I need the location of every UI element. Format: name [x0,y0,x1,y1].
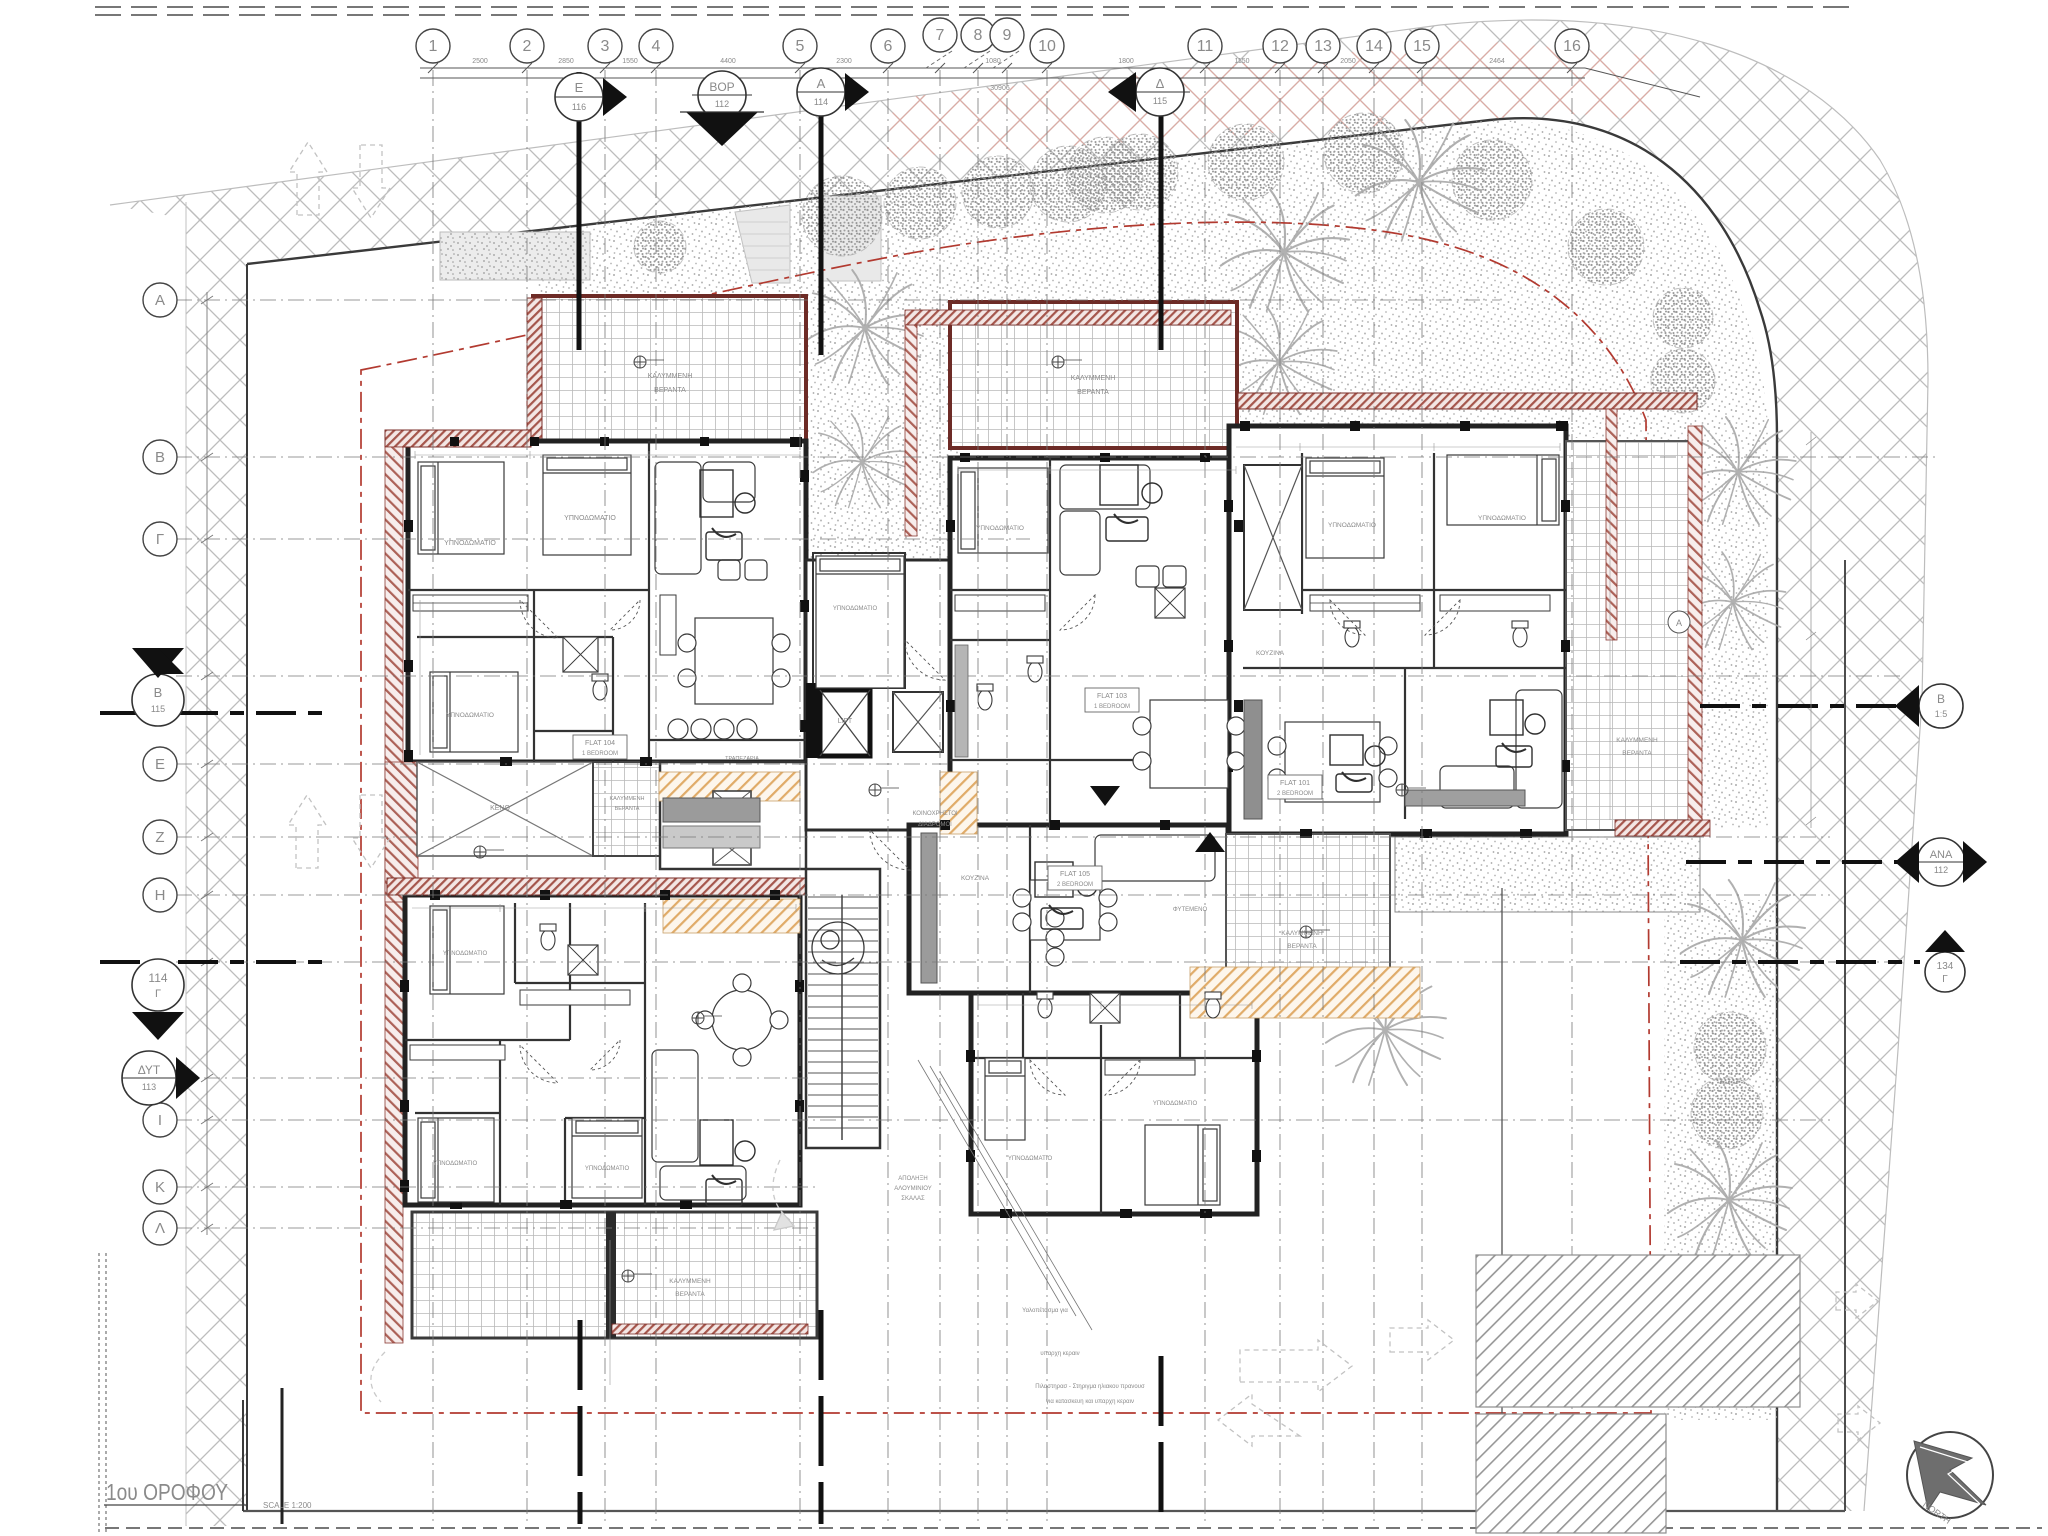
svg-text:6: 6 [884,38,893,55]
svg-text:ΒΕΡΑΝΤΑ: ΒΕΡΑΝΤΑ [615,806,640,812]
svg-text:Z: Z [155,829,164,846]
svg-text:2: 2 [523,38,532,55]
svg-text:ΚΕΝΟ: ΚΕΝΟ [490,805,510,812]
svg-text:1150: 1150 [1234,58,1249,65]
svg-text:ΥΠΝΟΔΩΜΑΤΙΟ: ΥΠΝΟΔΩΜΑΤΙΟ [1328,522,1376,529]
svg-text:112: 112 [715,99,729,109]
svg-text:FLAT 105: FLAT 105 [1060,871,1090,878]
svg-text:2 BEDROOM: 2 BEDROOM [1277,791,1313,797]
svg-text:1080: 1080 [985,58,1001,65]
svg-text:ΚΑΛΥΜΜΕΝΗ: ΚΑΛΥΜΜΕΝΗ [669,1278,711,1285]
svg-text:ΒΕΡΑΝΤΑ: ΒΕΡΑΝΤΑ [1077,389,1109,396]
svg-text:A: A [155,292,165,309]
svg-text:υπαρχη κεραιν: υπαρχη κεραιν [1040,1351,1079,1357]
svg-text:Λ: Λ [155,1220,165,1237]
svg-text:B: B [155,449,165,466]
svg-text:Γ: Γ [156,531,164,548]
svg-text:8: 8 [974,27,983,44]
svg-text:ΥΠΝΟΔΩΜΑΤΙΟ: ΥΠΝΟΔΩΜΑΤΙΟ [585,1166,630,1172]
svg-text:ΥΠΝΟΔΩΜΑΤΙΟ: ΥΠΝΟΔΩΜΑΤΙΟ [1478,515,1526,522]
svg-text:ΥΠΝΟΔΩΜΑΤΙΟ: ΥΠΝΟΔΩΜΑΤΙΟ [976,525,1024,532]
svg-text:K: K [155,1179,165,1196]
svg-text:FLAT 103: FLAT 103 [1097,693,1127,700]
svg-text:114: 114 [148,971,167,985]
svg-text:1ː5: 1ː5 [1935,709,1948,719]
svg-text:ΥΠΝΟΔΩΜΑΤΙΟ: ΥΠΝΟΔΩΜΑΤΙΟ [444,540,496,547]
svg-text:10: 10 [1038,38,1056,55]
svg-text:FLAT 101: FLAT 101 [1280,780,1310,787]
svg-text:ΤΡΑΠΕΖΑΡΙΑ: ΤΡΑΠΕΖΑΡΙΑ [725,756,759,762]
svg-text:LIFT: LIFT [838,718,853,725]
svg-text:ΑΠΟΛΗΞΗ: ΑΠΟΛΗΞΗ [898,1176,927,1182]
svg-text:I: I [158,1112,162,1129]
svg-text:ΒΕΡΑΝΤΑ: ΒΕΡΑΝΤΑ [1287,943,1317,950]
svg-text:4: 4 [652,38,661,55]
svg-text:1550: 1550 [622,58,638,65]
svg-text:ΥΠΝΟΔΩΜΑΤΙΟ: ΥΠΝΟΔΩΜΑΤΙΟ [564,515,616,522]
svg-text:ΚΑΛΥΜΜΕΝΗ: ΚΑΛΥΜΜΕΝΗ [648,373,693,380]
svg-text:16: 16 [1563,38,1581,55]
svg-text:E: E [575,80,584,95]
svg-text:3: 3 [601,38,610,55]
svg-text:2300: 2300 [836,58,852,65]
svg-text:30906: 30906 [990,85,1010,92]
svg-text:ΣΚΑΛΑΣ: ΣΚΑΛΑΣ [901,1196,925,1202]
svg-text:1ου ΟΡΟΦΟΥ: 1ου ΟΡΟΦΟΥ [106,1479,228,1505]
svg-text:ΚΑΛΥΜΜΕΝΗ: ΚΑΛΥΜΜΕΝΗ [1616,737,1658,744]
svg-text:12: 12 [1271,38,1289,55]
svg-text:11: 11 [1197,38,1214,55]
svg-text:116: 116 [572,102,586,112]
svg-text:ΒΕΡΑΝΤΑ: ΒΕΡΑΝΤΑ [654,387,686,394]
svg-text:ΥΠΝΟΔΩΜΑΤΙΟ: ΥΠΝΟΔΩΜΑΤΙΟ [833,606,878,612]
svg-text:ΚΟΥΖΙΝΑ: ΚΟΥΖΙΝΑ [961,875,990,882]
svg-text:Γ: Γ [155,988,161,1000]
svg-text:1 BEDROOM: 1 BEDROOM [582,751,618,757]
svg-text:ΒΕΡΑΝΤΑ: ΒΕΡΑΝΤΑ [675,1291,705,1298]
svg-text:H: H [155,887,166,904]
svg-text:ANA: ANA [1930,849,1953,861]
svg-text:FLAT 104: FLAT 104 [585,740,615,747]
svg-text:134: 134 [1937,961,1954,972]
svg-text:ΚΟΥΖΙΝΑ: ΚΟΥΖΙΝΑ [1256,650,1285,657]
svg-text:ΚΑΛΥΜΜΕΝΗ: ΚΑΛΥΜΜΕΝΗ [609,796,644,802]
svg-text:7: 7 [936,27,945,44]
svg-text:ΥΠΝΟΔΩΜΑΤΙΟ: ΥΠΝΟΔΩΜΑΤΙΟ [433,1161,478,1167]
svg-text:SCALE 1:200: SCALE 1:200 [263,1501,312,1510]
svg-text:2464: 2464 [1489,58,1505,65]
svg-text:1: 1 [429,38,438,55]
svg-text:A: A [817,76,826,91]
svg-text:113: 113 [142,1082,156,1092]
svg-text:A: A [1676,618,1682,628]
svg-text:Υαλοπέτασμα για: Υαλοπέτασμα για [1022,1307,1068,1314]
svg-text:ΚΑΛΥΜΜΕΝΗ: ΚΑΛΥΜΜΕΝΗ [1071,375,1116,382]
svg-text:Γ: Γ [1942,974,1948,985]
svg-text:9: 9 [1003,27,1012,44]
svg-text:14: 14 [1365,38,1383,55]
svg-text:1 BEDROOM: 1 BEDROOM [1094,704,1130,710]
svg-text:ΑΛΟΥΜΙΝΙΟΥ: ΑΛΟΥΜΙΝΙΟΥ [894,1186,932,1192]
svg-text:2500: 2500 [472,58,488,65]
svg-text:13: 13 [1314,38,1332,55]
svg-text:Δ: Δ [1156,76,1165,91]
svg-text:4400: 4400 [720,58,736,65]
svg-text:15: 15 [1413,38,1431,55]
svg-text:ΔΙΑΔΡΟΜΟΙ: ΔΙΑΔΡΟΜΟΙ [918,822,952,828]
svg-text:ΔΥΤ: ΔΥΤ [138,1063,161,1077]
svg-text:B: B [154,685,163,700]
svg-text:E: E [155,756,165,773]
svg-text:ΥΠΝΟΔΩΜΑΤΙΟ: ΥΠΝΟΔΩΜΑΤΙΟ [1008,1156,1053,1162]
svg-text:2050: 2050 [1340,58,1356,65]
svg-text:2850: 2850 [558,58,574,65]
svg-text:ΚΑΛΥΜΜΕΝΗ: ΚΑΛΥΜΜΕΝΗ [1281,930,1323,937]
svg-text:115: 115 [1153,96,1167,106]
svg-text:ΒΕΡΑΝΤΑ: ΒΕΡΑΝΤΑ [1622,750,1652,757]
svg-text:112: 112 [1934,865,1948,875]
svg-text:Πιλαστηρασ - Στηριγμα ηλιακου: Πιλαστηρασ - Στηριγμα ηλιακου πρανουσ [1035,1384,1145,1390]
svg-text:ΒΟΡ: ΒΟΡ [709,80,734,94]
svg-text:ΥΠΝΟΔΩΜΑΤΙΟ: ΥΠΝΟΔΩΜΑΤΙΟ [443,951,488,957]
svg-text:2 BEDROOM: 2 BEDROOM [1057,882,1093,888]
svg-text:114: 114 [814,97,828,107]
svg-text:1800: 1800 [1118,58,1134,65]
svg-text:ΥΠΝΟΔΩΜΑΤΙΟ: ΥΠΝΟΔΩΜΑΤΙΟ [446,712,494,719]
svg-text:115: 115 [151,704,165,714]
svg-text:ΦΥΤΕΜΕΝΟ: ΦΥΤΕΜΕΝΟ [1173,907,1208,913]
svg-text:ΥΠΝΟΔΩΜΑΤΙΟ: ΥΠΝΟΔΩΜΑΤΙΟ [1153,1101,1198,1107]
svg-text:ΚΟΙΝΟΧΡΗΣΤΟΙ: ΚΟΙΝΟΧΡΗΣΤΟΙ [912,811,957,817]
svg-text:για κατασκευη και υπαρχη κεραι: για κατασκευη και υπαρχη κεραιν [1046,1399,1134,1405]
svg-text:B: B [1937,692,1945,706]
svg-text:5: 5 [796,38,805,55]
